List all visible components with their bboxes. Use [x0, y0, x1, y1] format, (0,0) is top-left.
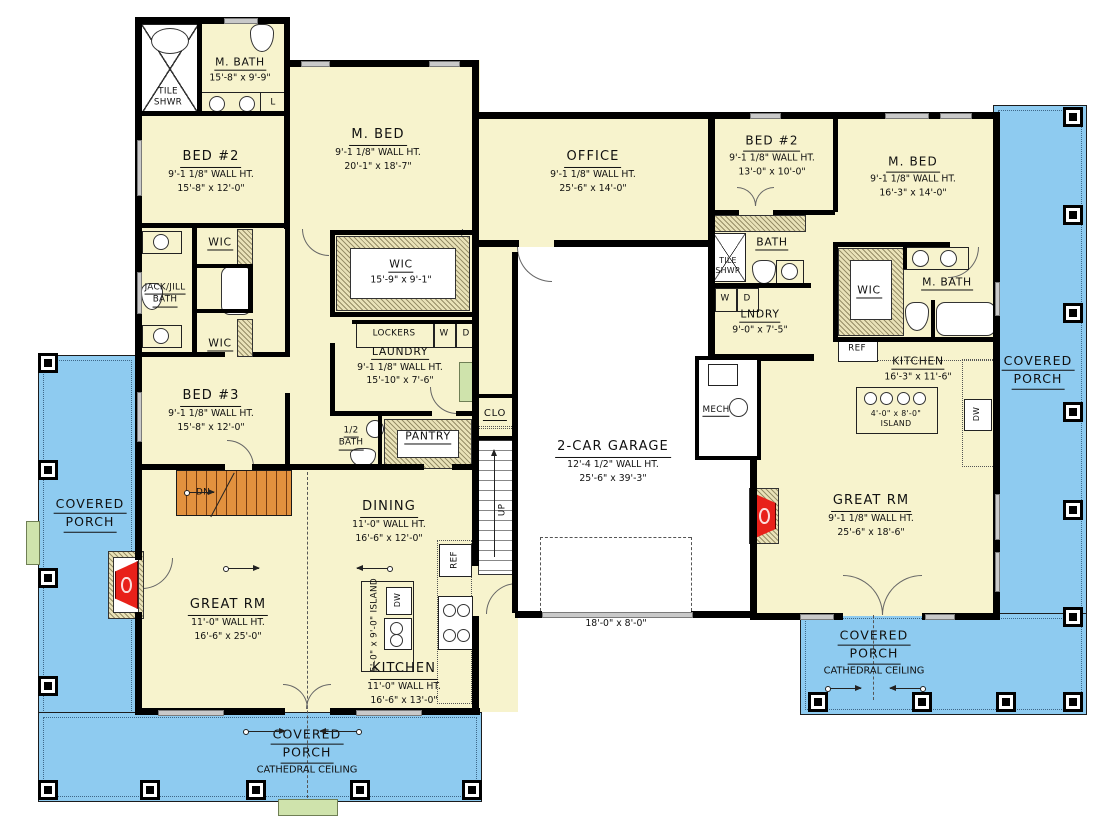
room-label-wic-bottom: WIC [207, 336, 233, 351]
wall-segment [135, 17, 290, 24]
direction-arrow [357, 564, 391, 572]
floor-plan-canvas: M. BATH 15'-8" x 9'-9" TILE SHWR L BED #… [0, 0, 1100, 826]
porch-column [350, 780, 370, 800]
wall-segment [903, 247, 907, 269]
room-label-m-bath-left: M. BATH 15'-8" x 9'-9" [209, 56, 270, 85]
wall-segment [691, 611, 755, 618]
room-label-tile-shwr-left: TILE SHWR [154, 87, 182, 110]
room-label-bed2-right: BED #2 9'-1 1/8" WALL HT. 13'-0" x 10'-0… [729, 134, 815, 179]
wall-segment [472, 436, 518, 440]
wall-segment [472, 119, 479, 566]
wall-segment [285, 229, 290, 357]
room-label-m-bath-right: M. BATH [921, 275, 973, 290]
sink-icon [390, 634, 403, 647]
wall-segment [197, 17, 202, 115]
wall-segment [993, 112, 1000, 620]
room-label-great-rm-left: GREAT RM 11'-0" WALL HT. 16'-6" x 25'-0" [188, 597, 268, 643]
burner-icon [897, 392, 910, 405]
wall-segment [712, 283, 811, 288]
tub-mbath-right [936, 302, 996, 336]
ridge-dashed-line [540, 537, 541, 611]
sink-icon [239, 96, 255, 112]
wall-segment [330, 230, 335, 316]
wall-segment [135, 352, 225, 357]
wall-segment [472, 60, 479, 119]
room-label-wic-top: WIC [207, 235, 233, 250]
door-arc [517, 247, 552, 282]
burner-icon [443, 604, 456, 617]
room-label-wic-right: WIC [856, 283, 882, 298]
wall-segment [456, 411, 472, 416]
window [429, 61, 460, 67]
direction-arrow [827, 684, 861, 692]
burner-icon [864, 392, 877, 405]
wall-segment [512, 252, 518, 613]
window [925, 614, 955, 620]
wall-segment [252, 464, 332, 470]
wall-segment [712, 210, 739, 215]
porch-column [1063, 402, 1083, 422]
wall-segment [285, 393, 290, 468]
label-porch-right: COVERED PORCH [1002, 353, 1075, 390]
wall-segment [708, 119, 715, 359]
shower-drain-icon [151, 28, 189, 54]
porch-column [1063, 303, 1083, 323]
room-label-office: OFFICE 9'-1 1/8" WALL HT. 25'-6" x 14'-0… [550, 149, 636, 195]
wall-segment [330, 312, 472, 317]
furnace [708, 364, 738, 386]
left-porch-step [26, 521, 40, 565]
porch-column [1063, 205, 1083, 225]
wall-segment [135, 612, 142, 715]
window [356, 710, 422, 716]
stair-up-arrow-line [494, 452, 495, 557]
window [137, 392, 142, 442]
burner-icon [457, 629, 470, 642]
room-label-tile-shwr-right: TILE SHWR [715, 256, 740, 276]
window [995, 282, 1000, 316]
direction-arrow [890, 684, 924, 692]
wall-segment [833, 242, 838, 342]
window [995, 494, 1000, 540]
porch-column [1063, 692, 1083, 712]
room-label-garage: 2-CAR GARAGE 12'-4 1/2" WALL HT. 25'-6" … [555, 439, 671, 485]
bed2-right-closet [714, 215, 806, 232]
room-label-bath-right: BATH [755, 235, 788, 250]
label-linen: L [270, 97, 275, 108]
porch-column [38, 568, 58, 588]
room-label-m-bed-left: M. BED 9'-1 1/8" WALL HT. 20'-1" x 18'-7… [335, 127, 421, 173]
wall-segment [773, 210, 835, 215]
wall-segment [833, 337, 1000, 342]
window [800, 614, 834, 620]
wall-segment [135, 111, 287, 116]
porch-column [912, 692, 932, 712]
porch-column [1063, 500, 1083, 520]
wall-segment [330, 230, 472, 235]
wall-segment [472, 240, 519, 247]
wall-segment [284, 17, 290, 229]
wall-segment [472, 112, 712, 119]
label-porch-left: COVERED PORCH [54, 496, 127, 533]
ridge-dashed-line [691, 537, 692, 611]
room-label-clo: CLO [483, 407, 507, 421]
room-label-bed2-left: BED #2 9'-1 1/8" WALL HT. 15'-8" x 12'-0… [168, 149, 254, 195]
label-ref-right: REF [848, 343, 866, 354]
burner-icon [913, 392, 926, 405]
window [940, 113, 972, 119]
wic-top-shelves [237, 229, 253, 267]
wall-segment [452, 464, 472, 470]
label-island-right: 4'-0" x 8'-0" ISLAND [871, 409, 921, 429]
sink-icon [781, 263, 798, 280]
label-garage-door-size: 18'-0" x 8'-0" [585, 616, 646, 630]
label-ref-left: REF [449, 551, 460, 569]
window [137, 140, 142, 196]
range-left [438, 596, 473, 650]
burner-icon [880, 392, 893, 405]
porch-column [38, 460, 58, 480]
wall-segment [192, 228, 197, 357]
label-washer-right: W [721, 293, 730, 304]
room-label-mech: MECH [702, 405, 729, 417]
window [158, 710, 224, 716]
window [885, 113, 929, 119]
porch-column [808, 692, 828, 712]
label-dw-left: DW [393, 593, 403, 607]
wall-segment [135, 223, 289, 228]
porch-column [38, 676, 58, 696]
sink-icon [153, 234, 169, 250]
label-island-left: 5'-0" x 9'-0" ISLAND [369, 578, 380, 672]
room-label-great-rm-right: GREAT RM 9'-1 1/8" WALL HT. 25'-6" x 18'… [828, 493, 914, 539]
porch-column [996, 692, 1016, 712]
ridge-dashed-line [540, 537, 691, 538]
room-label-laundry: LAUNDRY 9'-1 1/8" WALL HT. 15'-10" x 7'-… [357, 345, 443, 387]
wall-segment [330, 464, 424, 470]
wall-segment [838, 242, 950, 247]
room-label-pantry: PANTRY [404, 429, 451, 444]
porch-column [1063, 107, 1083, 127]
porch-column [38, 353, 58, 373]
porch-column [246, 780, 266, 800]
wall-segment [352, 320, 474, 324]
wall-segment [197, 309, 253, 313]
wall-segment [197, 264, 253, 268]
front-step [278, 799, 338, 816]
window [750, 113, 781, 119]
room-label-lndry-right: LNDRY 9'-0" x 7'-5" [732, 308, 787, 337]
room-label-jack-jill: JACK/JILL BATH [145, 283, 186, 308]
wall-segment [515, 611, 542, 618]
direction-arrow [225, 564, 259, 572]
window [995, 552, 1000, 592]
wall-segment [330, 343, 335, 415]
sink-icon [153, 328, 169, 344]
sink-icon [912, 250, 929, 267]
label-porch-bottom-right: COVERED PORCH CATHEDRAL CEILING [824, 628, 925, 679]
wall-segment [378, 416, 382, 468]
wall-segment [833, 119, 838, 212]
label-dryer-right: D [743, 293, 750, 304]
porch-column [38, 780, 58, 800]
wall-segment [248, 268, 253, 313]
porch-column [1063, 607, 1083, 627]
room-label-m-bed-right: M. BED 9'-1 1/8" WALL HT. 16'-3" x 14'-0… [870, 155, 956, 200]
closet-rod [476, 426, 516, 429]
wall-segment [554, 240, 715, 247]
sink-icon [940, 250, 957, 267]
wic-bottom-shelves [237, 319, 253, 357]
wall-segment [472, 616, 479, 715]
direction-arrow [320, 727, 360, 735]
wall-segment [931, 300, 935, 338]
room-label-bed3: BED #3 9'-1 1/8" WALL HT. 15'-8" x 12'-0… [168, 388, 254, 434]
burner-icon [457, 604, 470, 617]
room-label-wic-big: WIC 15'-9" x 9'-1" [370, 258, 431, 287]
wall-segment [472, 394, 518, 398]
room-label-kitchen-right: KITCHEN 16'-3" x 11'-6" [884, 355, 951, 384]
room-label-dining: DINING 11'-0" WALL HT. 16'-6" x 12'-0" [352, 499, 426, 545]
porch-column [140, 780, 160, 800]
label-up: UP [497, 504, 508, 516]
window [224, 18, 258, 24]
window [301, 61, 330, 67]
room-label-half-bath: 1/2 BATH [339, 426, 364, 451]
direction-arrow [245, 727, 285, 735]
label-dw-right: DW [972, 407, 982, 421]
sink-icon [209, 96, 225, 112]
label-lockers: LOCKERS [373, 328, 416, 339]
window [137, 272, 142, 314]
water-heater-icon [729, 398, 748, 417]
porch-column [462, 780, 482, 800]
label-dryer-left: D [462, 328, 469, 339]
label-washer-left: W [440, 328, 449, 339]
burner-icon [443, 629, 456, 642]
wall-segment [135, 464, 225, 470]
stair-up-arrowhead-icon [491, 449, 497, 456]
direction-arrow [186, 488, 214, 496]
